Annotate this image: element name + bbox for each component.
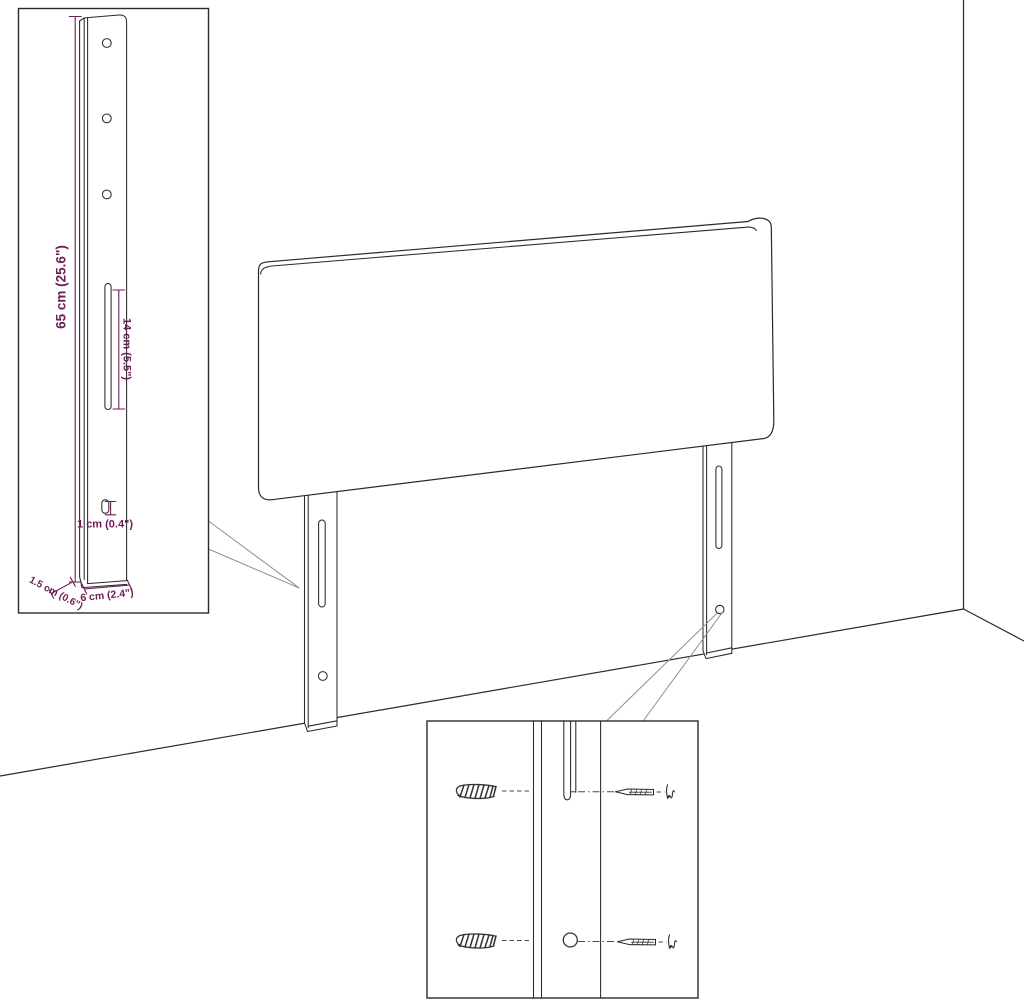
- floor-line-right: [964, 609, 1024, 641]
- callout-lines: [209, 521, 723, 721]
- dimension-height-label: 65 cm (25.6"): [54, 245, 69, 329]
- bracket-inset-callout-lines: [209, 521, 300, 588]
- screw-inset-frame: [427, 721, 698, 998]
- headboard-leg-right: [703, 440, 732, 659]
- headboard-panel: [259, 218, 774, 500]
- dimension-hook-label: 1 cm (0.4"): [77, 519, 133, 531]
- inset-bracket-detail: 65 cm (25.6") 14 cm (5.5") 1 cm (0.4") 1…: [19, 9, 209, 614]
- headboard-assembly-diagram: 65 cm (25.6") 14 cm (5.5") 1 cm (0.4") 1…: [0, 0, 1024, 1008]
- inset-screw-detail: [427, 721, 698, 998]
- headboard-leg-left: [305, 487, 338, 733]
- dimension-slot-length-label: 14 cm (5.5"): [121, 318, 133, 380]
- assembly-diagram-page: 65 cm (25.6") 14 cm (5.5") 1 cm (0.4") 1…: [0, 0, 1024, 1008]
